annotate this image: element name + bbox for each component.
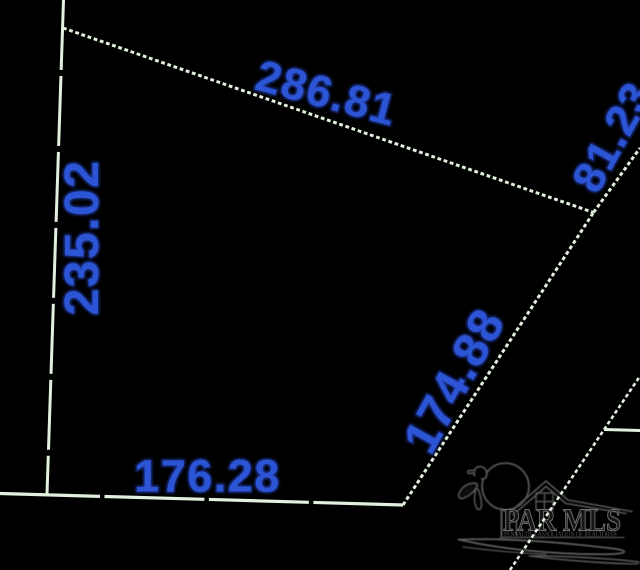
svg-text:176.28: 176.28	[134, 451, 281, 502]
svg-text:235.02: 235.02	[56, 160, 109, 316]
svg-text:PENSACOLA ASSOCIATION OF REALT: PENSACOLA ASSOCIATION OF REALTORS®	[504, 531, 618, 539]
